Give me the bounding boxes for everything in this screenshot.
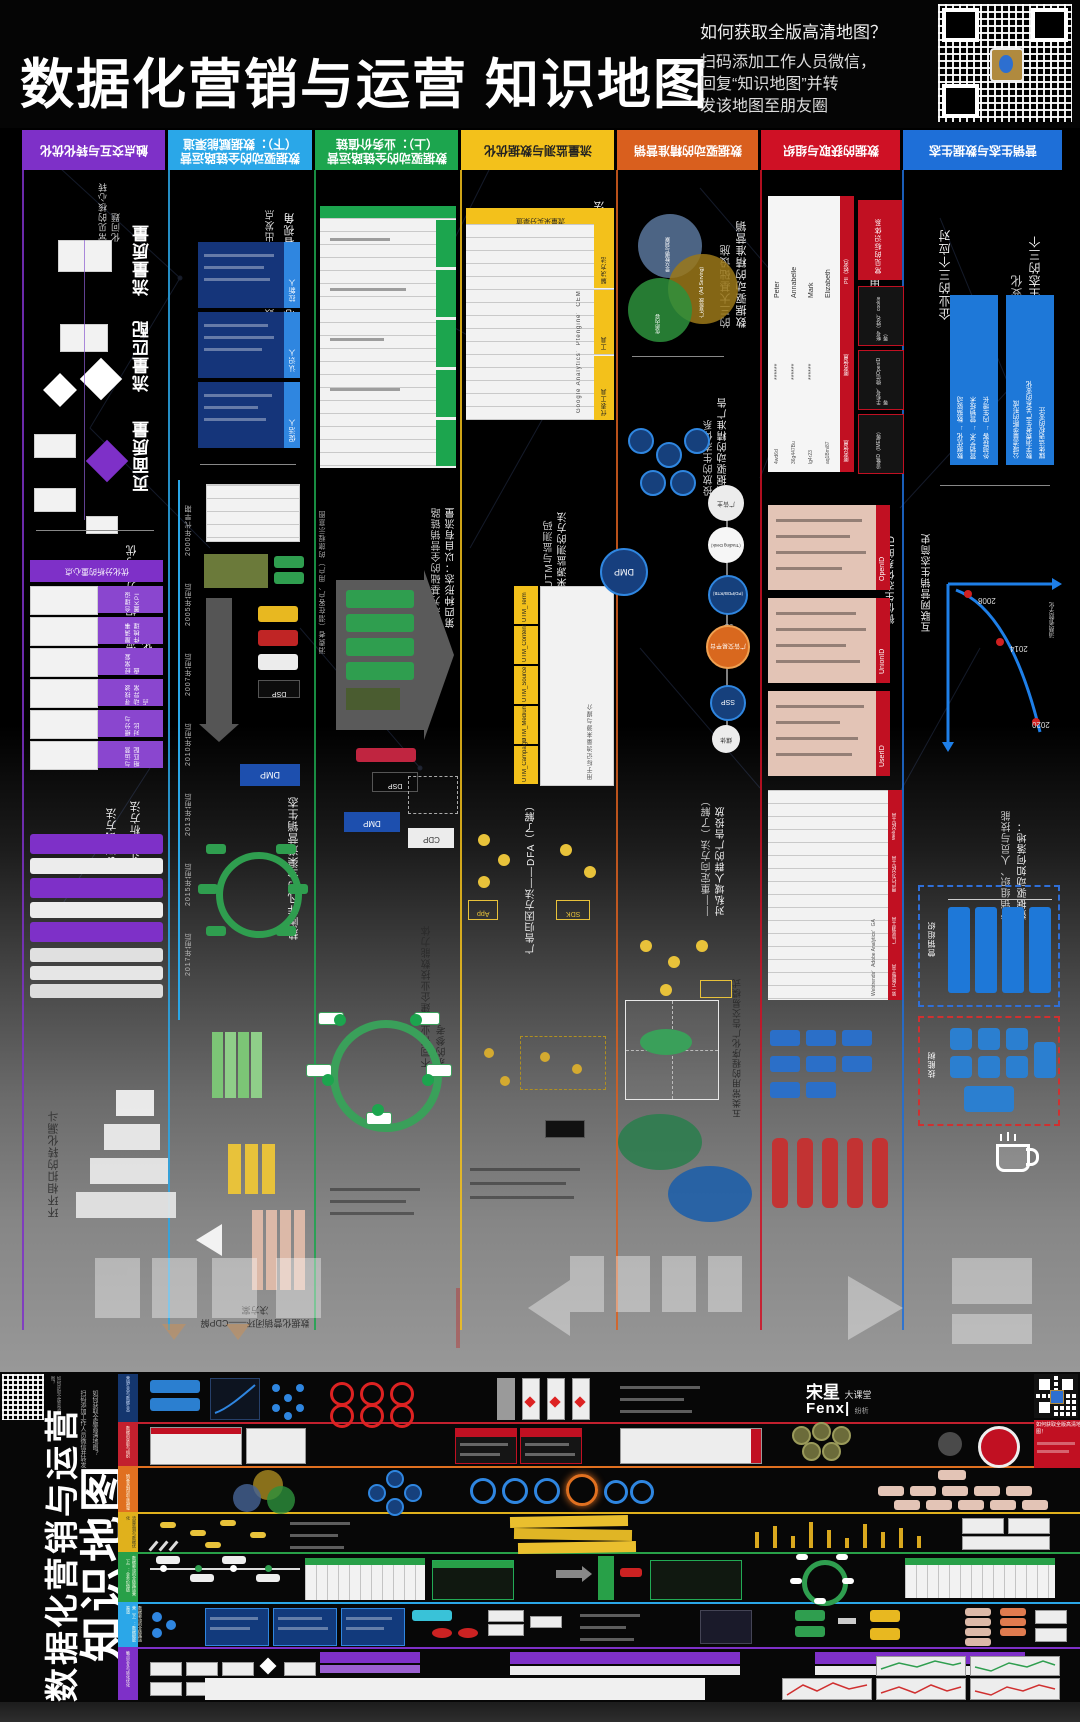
qr-center-logo bbox=[990, 48, 1024, 82]
section-header-4: 流量监测与数据优化 bbox=[461, 130, 614, 170]
section-title: 数据的获取与组织 bbox=[768, 143, 894, 157]
main-map: 触点交互与转化优化 数据驱动的全链路运营（下）：数据赋能渠道 数据驱动的全链路运… bbox=[0, 128, 1080, 1372]
instruction-line: 发该地图至朋友圈 bbox=[700, 96, 876, 118]
col3-journey-note: 消费者（潜在客户、用户）的旅程示意图 bbox=[318, 484, 328, 654]
change-box: 媒体话语权的变迁 数字消费者生产关系的变化 公域流量垄断的形成 bbox=[1006, 295, 1054, 465]
column-line bbox=[22, 170, 24, 1330]
id-block-unionid: UnionID bbox=[768, 598, 890, 683]
top-banner: 数据化营销与运营 知识地图 如何获取全版高清地图？ 扫码添加工作人员微信， 回复… bbox=[0, 0, 1080, 128]
chart-year: 2008 bbox=[978, 596, 996, 605]
section-header-2: 数据驱动的全链路运营（下）：数据赋能渠道 bbox=[168, 130, 312, 170]
column-line bbox=[460, 170, 462, 1330]
instruction-line: 扫码添加工作人员微信， bbox=[700, 52, 876, 74]
qr-code-icon bbox=[938, 4, 1072, 122]
col1-table-header: 优化分析的重心点 bbox=[30, 560, 163, 582]
col5-retarget-title: 对私域人群的广告投放 bbox=[714, 776, 729, 916]
section-title: 流量监测与数据优化 bbox=[473, 143, 603, 157]
band-tab-4: 流量监测与数据优化 bbox=[118, 1514, 138, 1552]
band-tab-7: 营销生态与数据生态 bbox=[118, 1374, 138, 1422]
funnel-title: 环环相扣的转化漏斗 bbox=[46, 1094, 62, 1218]
timeline-line bbox=[178, 480, 180, 1020]
column-line bbox=[760, 170, 762, 1330]
id-block-openid: OpenID bbox=[768, 505, 890, 590]
col5-infra-title: 数据驱动的精准营销 bbox=[734, 178, 750, 328]
label-traffic-quality: 流量质量 bbox=[130, 216, 155, 296]
section-header-5: 数据驱动的精准营销 bbox=[617, 130, 758, 170]
section-title: 营销生态与数据生态 bbox=[913, 143, 1053, 157]
col1-intro: 常见的核心转化问题 bbox=[96, 178, 122, 242]
column-line bbox=[168, 170, 170, 1330]
label-traffic-match: 流量匹配 bbox=[130, 312, 155, 392]
timeline-year: 2000年代早期 bbox=[184, 486, 194, 556]
chart-year: 2014 bbox=[1010, 644, 1028, 653]
brand-fenxi: Fenx| 纷析 bbox=[806, 1400, 869, 1418]
skill-dashed-box: 技能树 bbox=[918, 1016, 1060, 1126]
col5-retarget-title2: ——重定向方法（了解） bbox=[700, 776, 715, 916]
col5-eco-title: 数据驱动的精准广告 bbox=[716, 366, 731, 496]
tools-examples: Webtrends、Adobe Analytics、GA bbox=[870, 796, 877, 996]
section-title: 数据驱动的全链路运营（下）：数据赋能渠道 bbox=[174, 136, 306, 165]
grey-flow-arrow bbox=[206, 598, 232, 724]
rotated-map-strip: 如何获取全版高清地图？ 扫码添加工作人员微信并转发 如何获取全版高清地图？ 数据… bbox=[0, 1372, 1080, 1702]
utm-desc: 用于标记流量来源与媒介 bbox=[586, 590, 595, 780]
timeline-year: 2007年前后 bbox=[184, 636, 194, 696]
instruction-line: 回复“知识地图”并转 bbox=[700, 74, 876, 96]
chart-axis-label: 消费者数字化 bbox=[1048, 568, 1057, 638]
section-header-6: 数据的获取与组织 bbox=[761, 130, 900, 170]
band-tab-5: 数据驱动的精准营销 bbox=[118, 1468, 138, 1512]
timeline-year: 2010年前后 bbox=[184, 706, 194, 766]
timeline-year: 2017年前后 bbox=[184, 916, 194, 976]
section-title: 数据驱动的全链路运营（上）：业务价值链 bbox=[321, 136, 453, 165]
section-header-7: 营销生态与数据生态 bbox=[903, 130, 1062, 170]
band-tab-2: 数据驱动的全链路运营（下）：数据赋能渠道 bbox=[118, 1604, 138, 1647]
label-page-quality: 页面质量 bbox=[130, 400, 155, 492]
page-title: 数据化营销与运营 知识地图 bbox=[20, 40, 709, 119]
tool-names: Google Analytics、Ptengine、CEM bbox=[574, 228, 583, 413]
chart-year: 2020 bbox=[1032, 720, 1050, 729]
col4-dfa-title: 广告归因方法——DFA（了解） bbox=[524, 804, 539, 954]
quadrant-chart bbox=[625, 1000, 719, 1100]
column-line bbox=[616, 170, 618, 1330]
id-block-userid: UserID bbox=[768, 691, 890, 776]
react-box: 外部获客 → 内生增长 营销艺术 → 营销技术 数据优化 → 数据驱动 bbox=[950, 295, 998, 465]
timeline-year: 2005年前后 bbox=[184, 566, 194, 626]
col5-modes-note: 五类常用的程序化广告交易模式 bbox=[730, 958, 743, 1118]
poster: 数据化营销与运营 知识地图 如何获取全版高清地图？ 扫码添加工作人员微信， 回复… bbox=[0, 0, 1080, 1722]
strip-title-sub: 知识地图 bbox=[67, 1459, 119, 1665]
section-title: 触点交互与转化优化 bbox=[34, 143, 154, 157]
column-line bbox=[314, 170, 316, 1330]
section-header-3: 数据驱动的全链路运营（上）：业务价值链 bbox=[315, 130, 458, 170]
band-tab-6: 数据的获取与组织 bbox=[118, 1424, 138, 1466]
col7-history-title: 互联网营销生态简史 bbox=[920, 492, 935, 632]
band-tab-3: 数据驱动的全链路运营（上）：业务价值链 bbox=[118, 1554, 138, 1602]
timeline-year: 2015年前后 bbox=[184, 846, 194, 906]
band-tab-1: 触点交互与转化优化 bbox=[118, 1649, 138, 1700]
qr-question: 如何获取全版高清地图？ bbox=[700, 18, 887, 43]
promo-note: 如何获取全版高清地图！ bbox=[1034, 1420, 1080, 1468]
timeline-year: 2013年前后 bbox=[184, 776, 194, 836]
bottom-edge bbox=[0, 1702, 1080, 1722]
section-header-1: 触点交互与转化优化 bbox=[22, 130, 165, 170]
strip-qr-right bbox=[1034, 1374, 1078, 1418]
qr-instruction: 扫码添加工作人员微信， 回复“知识地图”并转 发该地图至朋友圈 bbox=[700, 52, 876, 118]
dmp-circle: DMP bbox=[600, 548, 648, 596]
org-dashed-box: 营销组织 bbox=[918, 885, 1060, 1007]
dmp-box: DMP bbox=[240, 764, 300, 786]
section-title: 数据驱动的精准营销 bbox=[624, 143, 752, 157]
